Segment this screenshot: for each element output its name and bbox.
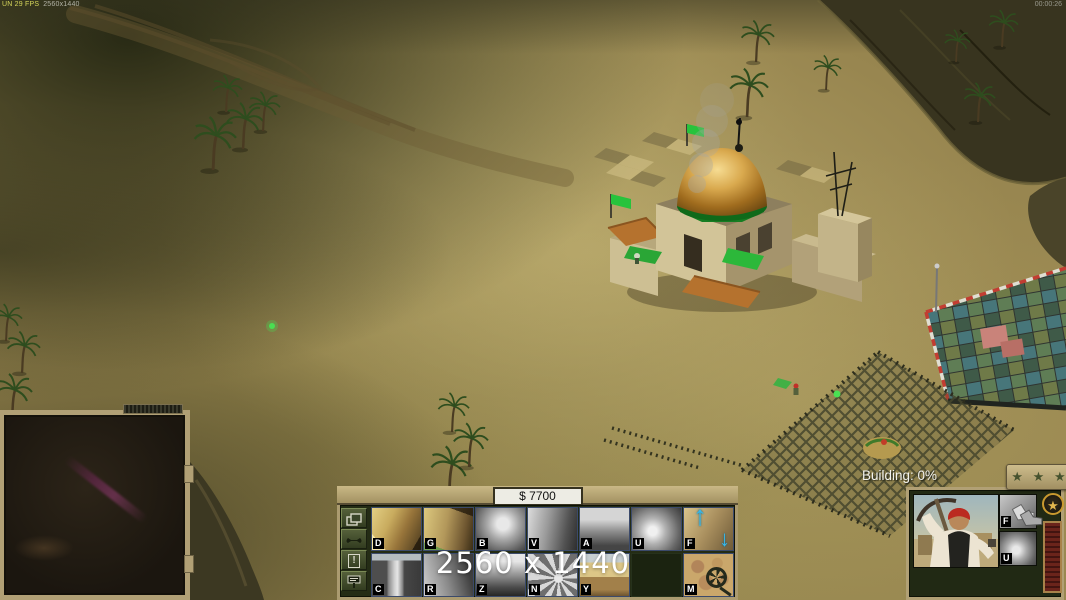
build-option-d[interactable]: D	[371, 507, 422, 551]
star-icon: ★	[1047, 498, 1059, 513]
up-arrow-icon: ↑	[693, 502, 707, 530]
wrench-icon	[346, 534, 362, 546]
game-timer: 00:00:26	[1035, 1, 1062, 8]
sell-sign-icon	[346, 575, 362, 589]
repair-button[interactable]	[341, 529, 367, 549]
down-arrow-icon: ↓	[719, 528, 730, 550]
flagpole	[936, 268, 937, 312]
menu-button[interactable]	[341, 508, 367, 528]
exclamation-icon: !	[348, 554, 360, 568]
sell-button[interactable]	[341, 571, 367, 591]
minimap-frame-notch	[184, 555, 194, 573]
game-viewport[interactable]: UN 29 FPS2560x1440 00:00:26 $ 7700	[0, 0, 1066, 600]
unit-portrait[interactable]	[913, 494, 999, 568]
build-option-g[interactable]: G	[423, 507, 474, 551]
ability-button-boots[interactable]: F	[999, 494, 1037, 529]
build-option-a[interactable]: A	[579, 507, 630, 551]
unit-info-panel: F U ★	[906, 487, 1064, 600]
unit-marker[interactable]	[266, 320, 278, 332]
fence-row	[604, 428, 744, 468]
build-option-u[interactable]: U	[631, 507, 682, 551]
side-button-column: !	[341, 507, 369, 592]
worker-unit[interactable]	[794, 384, 799, 396]
money-strip: $ 7700	[337, 486, 738, 505]
minimap[interactable]	[6, 417, 183, 593]
metal-detector-icon	[706, 567, 727, 588]
build-option-m[interactable]: M	[683, 553, 734, 597]
resolution-watermark: 2560 x 1440	[436, 546, 630, 580]
rally-dot	[834, 391, 841, 398]
ability-button-demolish[interactable]: U	[999, 531, 1037, 566]
alert-button[interactable]: !	[341, 550, 367, 570]
metal-detector-handle	[719, 587, 731, 597]
experience-bar	[1043, 521, 1062, 593]
debug-text: UN 29 FPS2560x1440	[2, 1, 80, 9]
command-bar: $ 7700 !	[337, 486, 738, 600]
rank-stars-plaque: ★ ★ ★	[1006, 464, 1066, 490]
build-option-b[interactable]: B	[475, 507, 526, 551]
minimap-terrain-streak	[64, 455, 148, 524]
green-tarp	[773, 378, 792, 389]
sandbag-mound	[863, 437, 901, 459]
building-progress-label: Building: 0%	[862, 468, 937, 483]
minimap-frame-notch	[184, 465, 194, 483]
money-display: $ 7700	[493, 487, 583, 506]
minimap-panel[interactable]	[0, 410, 190, 600]
windows-icon	[346, 513, 362, 526]
build-option-f[interactable]: ↑ ↓ F	[683, 507, 734, 551]
build-option-c[interactable]: C	[371, 553, 422, 597]
green-flag	[611, 194, 631, 218]
antenna-mast	[826, 152, 856, 216]
dirt-road	[70, 6, 565, 178]
build-slot-empty	[631, 553, 682, 597]
minimap-terrain-patch	[14, 535, 74, 561]
boots-icon	[1006, 496, 1044, 531]
minimap-tab	[123, 404, 183, 414]
build-option-v[interactable]: V	[527, 507, 578, 551]
worker-portrait-image	[914, 495, 998, 567]
rank-stars: ★ ★ ★	[1011, 469, 1066, 484]
supply-crates[interactable]	[926, 264, 1066, 409]
promotion-star-button[interactable]: ★	[1042, 493, 1064, 515]
